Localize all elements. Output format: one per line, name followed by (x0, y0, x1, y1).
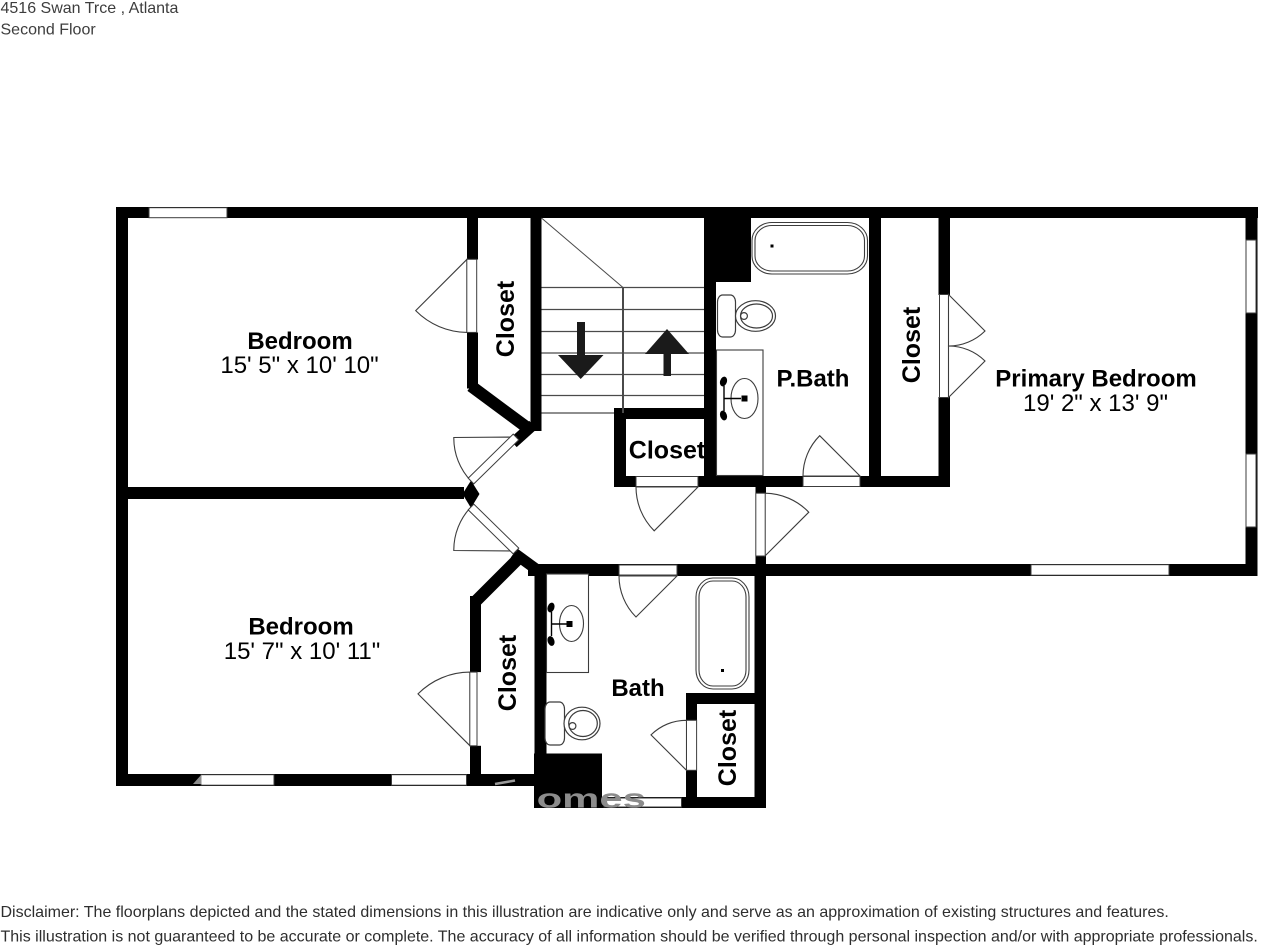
svg-text:Primary Bedroom: Primary Bedroom (995, 366, 1196, 393)
svg-text:omes: omes (537, 784, 646, 814)
svg-text:19' 2" x 13' 9": 19' 2" x 13' 9" (1023, 390, 1168, 417)
svg-text:Bedroom: Bedroom (248, 614, 353, 641)
svg-text:Closet: Closet (492, 280, 520, 357)
svg-text:Closet: Closet (714, 709, 742, 786)
svg-text:Closet: Closet (494, 634, 522, 711)
svg-text:Second Floor: Second Floor (1, 22, 97, 39)
svg-text:4516 Swan Trce , Atlanta: 4516 Swan Trce , Atlanta (1, 0, 179, 17)
svg-text:P.Bath: P.Bath (777, 366, 850, 393)
svg-text:Disclaimer: The floorplans dep: Disclaimer: The floorplans depicted and … (1, 904, 1169, 921)
svg-text:Bath: Bath (611, 675, 664, 702)
svg-text:15' 5" x 10' 10": 15' 5" x 10' 10" (220, 352, 378, 379)
svg-text:Bedroom: Bedroom (247, 328, 352, 355)
svg-text:15' 7" x 10' 11": 15' 7" x 10' 11" (224, 638, 381, 665)
svg-text:Closet: Closet (898, 306, 926, 383)
svg-text:Closet: Closet (629, 437, 706, 465)
svg-text:This illustration is not guara: This illustration is not guaranteed to b… (1, 928, 1258, 945)
